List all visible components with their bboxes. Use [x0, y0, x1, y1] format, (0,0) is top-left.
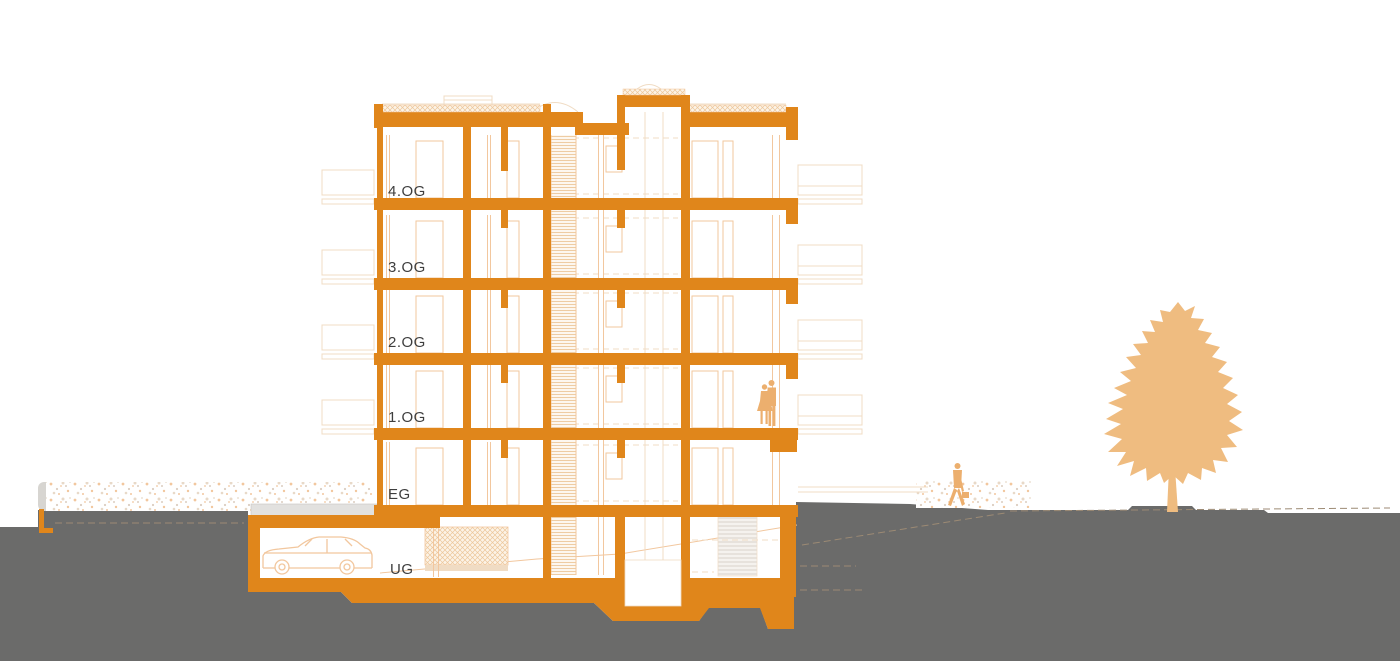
architectural-section-canvas: 4.OG 3.OG 2.OG 1.OG EG UG: [0, 0, 1400, 669]
floor-label-ug: UG: [390, 561, 414, 578]
driveway-strip: [251, 504, 377, 516]
floor-label-2og: 2.OG: [388, 334, 426, 351]
roof-insulation-right: [689, 105, 786, 112]
balconies-right: [798, 165, 862, 434]
stair-wall: [543, 104, 551, 578]
slab-2og: [374, 353, 798, 365]
car-silhouette: [263, 537, 372, 574]
elevator-head-slab: [619, 95, 689, 107]
floor-label-4og: 4.OG: [388, 183, 426, 200]
roof-recess-upstand: [575, 112, 583, 135]
elevator-wall-right: [681, 95, 690, 606]
slab-3og: [374, 278, 798, 290]
elevator-dome: [637, 85, 661, 90]
couple-figures: [757, 380, 776, 426]
elevator-head-insulation: [623, 89, 685, 95]
garage-ceiling-slab: [248, 515, 440, 528]
tree-silhouette: [1104, 302, 1243, 512]
parapet-left: [374, 104, 383, 128]
floor-label-1og: 1.OG: [388, 409, 426, 426]
slab-1og: [374, 428, 798, 440]
floor-label-3og: 3.OG: [388, 259, 426, 276]
slab-4og: [374, 198, 798, 210]
garage-door-sill: [425, 565, 508, 571]
parapet-right: [786, 107, 798, 140]
interior-wall-1: [463, 127, 471, 505]
building-section-drawing: 4.OG 3.OG 2.OG 1.OG EG UG: [0, 0, 1400, 669]
roof-slab-right: [689, 112, 798, 127]
garage-door-hatch: [425, 527, 508, 565]
elevator-pit: [625, 560, 681, 606]
basement-stair-grille: [718, 510, 757, 576]
balconies-left: [322, 170, 374, 434]
hedge-texture: [916, 479, 1032, 508]
right-hedge: [916, 479, 1032, 508]
exterior-wall-left: [377, 127, 383, 505]
roof-insulation-left: [382, 105, 540, 112]
elevator-wall-left: [617, 95, 625, 170]
floor-slabs: [374, 95, 798, 517]
floor-label-eg: EG: [388, 486, 411, 503]
